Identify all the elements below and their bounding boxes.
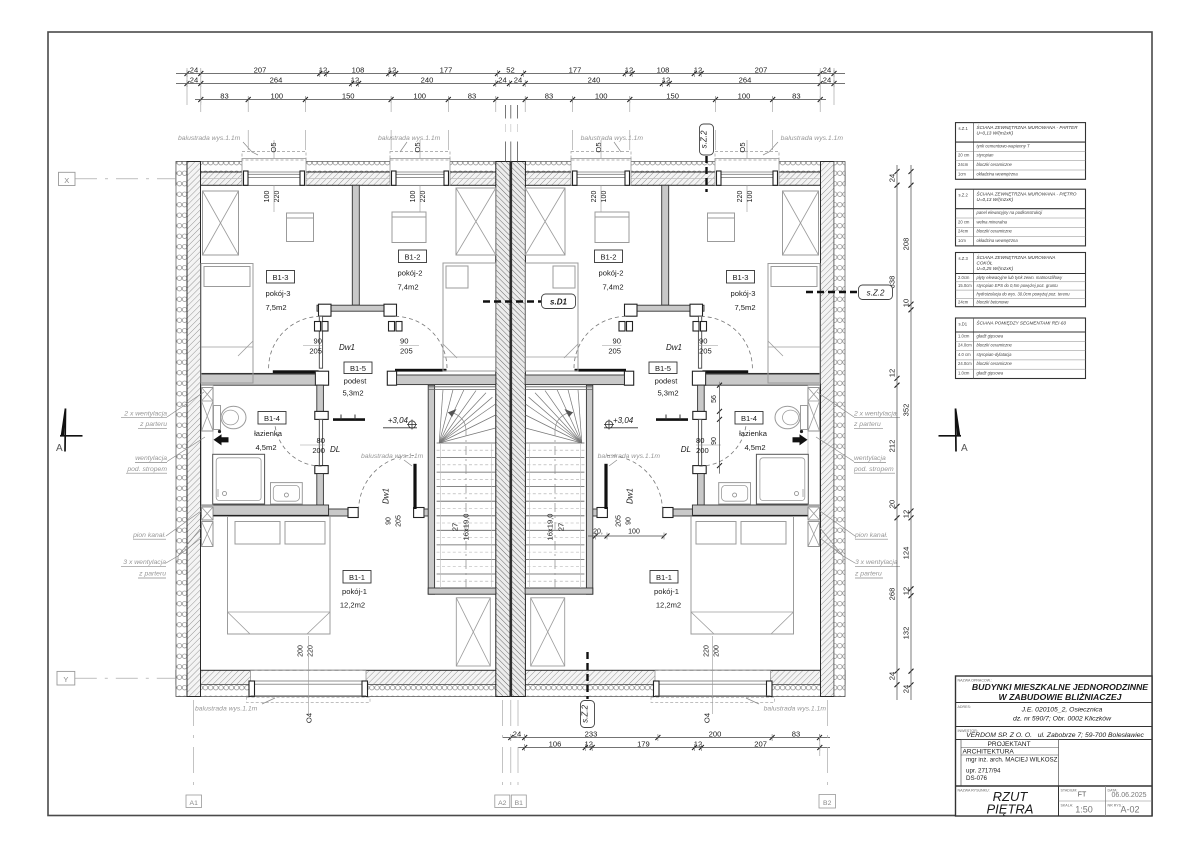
svg-text:bloczki ceramiczne: bloczki ceramiczne: [977, 343, 1013, 348]
svg-text:12: 12: [888, 369, 897, 377]
svg-text:10: 10: [902, 299, 911, 307]
svg-text:X: X: [64, 176, 69, 185]
svg-text:12,2m2: 12,2m2: [340, 601, 365, 610]
svg-text:212: 212: [888, 440, 897, 453]
svg-text:264: 264: [270, 75, 283, 84]
svg-text:s.Z.1: s.Z.1: [959, 126, 969, 131]
svg-text:12: 12: [902, 510, 911, 518]
svg-text:220: 220: [420, 191, 427, 203]
svg-text:wentylacja: wentylacja: [135, 455, 167, 462]
svg-text:B1-2: B1-2: [600, 253, 616, 262]
svg-text:U=0,25 W/(m2xK): U=0,25 W/(m2xK): [977, 266, 1014, 271]
svg-text:Y: Y: [63, 675, 68, 684]
svg-text:24: 24: [513, 729, 521, 738]
svg-text:ŚCIANA POMIĘDZY SEGMENTAMI REI: ŚCIANA POMIĘDZY SEGMENTAMI REI-60: [977, 320, 1067, 326]
svg-text:200: 200: [714, 645, 721, 657]
svg-text:B1-1: B1-1: [349, 573, 365, 582]
svg-text:z parteru: z parteru: [853, 421, 881, 428]
svg-text:bloczki ceramiczne: bloczki ceramiczne: [977, 361, 1013, 366]
svg-text:24: 24: [190, 75, 198, 84]
svg-text:tynk cementowo-wapienny T: tynk cementowo-wapienny T: [977, 143, 1031, 148]
svg-text:1cm: 1cm: [958, 171, 966, 176]
svg-text:24cm: 24cm: [958, 162, 969, 167]
svg-text:B1-5: B1-5: [655, 364, 671, 373]
svg-text:100: 100: [738, 91, 751, 100]
svg-text:wentylacja: wentylacja: [854, 455, 886, 462]
svg-text:205: 205: [309, 347, 322, 356]
svg-text:90: 90: [626, 517, 633, 525]
svg-text:12: 12: [694, 739, 702, 748]
svg-text:pokój-3: pokój-3: [266, 289, 291, 298]
svg-text:150: 150: [342, 91, 355, 100]
svg-text:ŚCIANA ZEWNĘTRZNA MUROWANA - P: ŚCIANA ZEWNĘTRZNA MUROWANA - PARTER: [977, 124, 1079, 130]
svg-text:24: 24: [498, 75, 506, 84]
svg-text:pion kanał.: pion kanał.: [854, 532, 888, 539]
svg-text:s.Z.2: s.Z.2: [700, 130, 709, 148]
svg-text:205: 205: [400, 347, 413, 356]
svg-text:2 x wentylacja: 2 x wentylacja: [853, 410, 897, 417]
svg-text:150: 150: [666, 91, 679, 100]
svg-text:24.0cm: 24.0cm: [958, 343, 972, 348]
svg-text:16x19,0: 16x19,0: [462, 513, 471, 540]
svg-text:płyty elewacyjne lub tynk zewn: płyty elewacyjne lub tynk zewn. matnoszl…: [976, 275, 1064, 280]
svg-text:3 x wentylacja: 3 x wentylacja: [855, 559, 898, 566]
svg-text:s.D1: s.D1: [550, 298, 567, 307]
svg-text:4,5m2: 4,5m2: [744, 443, 765, 452]
svg-text:90: 90: [699, 337, 707, 346]
svg-text:SKALA:: SKALA:: [1061, 804, 1074, 808]
svg-text:179: 179: [637, 739, 650, 748]
svg-text:bloczki betonowe: bloczki betonowe: [977, 300, 1010, 305]
svg-text:pokój-2: pokój-2: [599, 269, 624, 278]
svg-text:balustrada wys.1.1m: balustrada wys.1.1m: [764, 706, 827, 713]
svg-text:U=0,13 W/(m2xK): U=0,13 W/(m2xK): [977, 197, 1014, 202]
svg-text:24: 24: [888, 174, 897, 182]
svg-text:2.0cm: 2.0cm: [958, 275, 970, 280]
svg-text:A-02: A-02: [1120, 805, 1139, 815]
svg-text:83: 83: [792, 729, 800, 738]
svg-text:352: 352: [902, 404, 911, 417]
svg-text:U=0,13 W/(m2xK): U=0,13 W/(m2xK): [977, 131, 1014, 136]
svg-text:12: 12: [388, 65, 396, 74]
svg-text:balustrada wys.1.1m: balustrada wys.1.1m: [781, 135, 844, 142]
svg-text:pokój-1: pokój-1: [342, 587, 367, 596]
svg-text:132: 132: [902, 627, 911, 640]
svg-text:108: 108: [657, 65, 670, 74]
svg-text:A1: A1: [190, 800, 199, 807]
svg-text:177: 177: [569, 65, 582, 74]
svg-text:łazienka: łazienka: [254, 429, 283, 438]
svg-text:108: 108: [352, 65, 365, 74]
svg-text:PROJEKTANT: PROJEKTANT: [987, 741, 1030, 748]
svg-text:83: 83: [220, 91, 228, 100]
svg-text:12: 12: [584, 739, 592, 748]
svg-text:90: 90: [613, 337, 621, 346]
svg-text:4,5m2: 4,5m2: [255, 443, 276, 452]
svg-text:207: 207: [254, 65, 267, 74]
svg-text:1:50: 1:50: [1075, 805, 1093, 815]
svg-text:pokój-2: pokój-2: [398, 269, 423, 278]
svg-text:06.06.2025: 06.06.2025: [1111, 792, 1146, 799]
svg-text:podest: podest: [344, 377, 368, 386]
svg-text:W ZABUDOWIE BLIŻNIACZEJ: W ZABUDOWIE BLIŻNIACZEJ: [998, 692, 1121, 702]
svg-text:łazienka: łazienka: [739, 429, 768, 438]
svg-text:100: 100: [264, 191, 271, 203]
svg-text:100: 100: [628, 529, 640, 536]
svg-text:pokój-1: pokój-1: [654, 587, 679, 596]
svg-text:Dw1: Dw1: [382, 488, 391, 504]
svg-text:O4: O4: [703, 713, 712, 723]
svg-text:24cm: 24cm: [958, 300, 969, 305]
svg-text:B1-3: B1-3: [732, 273, 748, 282]
svg-text:Dw1: Dw1: [626, 488, 635, 504]
svg-text:B1: B1: [515, 800, 524, 807]
svg-text:205: 205: [608, 347, 621, 356]
svg-text:panel elewacyjny na podkonstru: panel elewacyjny na podkonstrukcji: [976, 210, 1044, 215]
svg-text:220: 220: [591, 191, 598, 203]
svg-text:20 cm: 20 cm: [958, 219, 970, 224]
svg-text:balustrada wys.1.1m: balustrada wys.1.1m: [598, 453, 661, 460]
svg-text:20: 20: [888, 500, 897, 508]
svg-text:24.0cm: 24.0cm: [958, 361, 972, 366]
svg-text:dz. nr 590/7; Obr. 0002 Kliczk: dz. nr 590/7; Obr. 0002 Kliczków: [1013, 716, 1112, 723]
svg-text:208: 208: [902, 238, 911, 251]
svg-text:100: 100: [410, 191, 417, 203]
svg-text:205: 205: [396, 515, 403, 527]
svg-text:205: 205: [699, 347, 712, 356]
svg-text:balustrada wys.1.1m: balustrada wys.1.1m: [178, 135, 241, 142]
svg-text:A: A: [961, 443, 968, 454]
svg-text:z parteru: z parteru: [139, 421, 167, 428]
svg-text:O5: O5: [413, 142, 422, 152]
svg-text:STADIUM:: STADIUM:: [1061, 789, 1078, 793]
svg-text:upr. 2717/94: upr. 2717/94: [966, 768, 1001, 775]
svg-text:VERDOM SP. Z O. O. ul. Zabob: VERDOM SP. Z O. O. ul. Zabobrze 7; 59-70…: [966, 732, 1144, 739]
svg-text:styropian: styropian: [977, 153, 995, 158]
svg-text:100: 100: [413, 91, 426, 100]
svg-text:100: 100: [595, 91, 608, 100]
svg-text:240: 240: [421, 75, 434, 84]
svg-text:200: 200: [709, 729, 722, 738]
svg-text:ARCHITEKTURA: ARCHITEKTURA: [963, 749, 1015, 756]
svg-text:12: 12: [902, 587, 911, 595]
svg-text:200: 200: [312, 446, 325, 455]
svg-text:mgr inż. arch. MACIEJ WILKOSZ: mgr inż. arch. MACIEJ WILKOSZ: [966, 757, 1058, 764]
svg-text:+3,04: +3,04: [388, 416, 409, 425]
svg-text:2 x wentylacja: 2 x wentylacja: [123, 410, 167, 417]
svg-text:B1-4: B1-4: [741, 414, 757, 423]
svg-text:16x19,0: 16x19,0: [546, 513, 555, 540]
svg-text:z parteru: z parteru: [138, 571, 166, 578]
svg-text:220: 220: [704, 645, 711, 657]
svg-text:balustrada wys.1.1m: balustrada wys.1.1m: [378, 135, 441, 142]
svg-text:FT: FT: [1078, 792, 1087, 799]
svg-text:7,4m2: 7,4m2: [602, 283, 623, 292]
svg-text:hydroizolacja do wys. 30.0cm p: hydroizolacja do wys. 30.0cm powyżej poz…: [977, 291, 1071, 296]
svg-text:5,3m2: 5,3m2: [657, 389, 678, 398]
svg-text:balustrada wys.1.1m: balustrada wys.1.1m: [581, 135, 644, 142]
svg-text:pokój-3: pokój-3: [731, 289, 756, 298]
svg-text:z parteru: z parteru: [854, 571, 882, 578]
svg-text:27: 27: [557, 523, 566, 531]
svg-text:83: 83: [545, 91, 553, 100]
svg-text:A: A: [56, 443, 63, 454]
svg-text:pod. stropem: pod. stropem: [853, 466, 894, 473]
svg-text:12: 12: [625, 65, 633, 74]
svg-text:wełna mineralna: wełna mineralna: [977, 219, 1008, 224]
svg-text:ADRES:: ADRES:: [958, 705, 971, 709]
svg-text:B1-4: B1-4: [264, 414, 280, 423]
svg-text:100: 100: [270, 91, 283, 100]
svg-text:12: 12: [662, 75, 670, 84]
svg-text:24: 24: [190, 65, 198, 74]
svg-text:O4: O4: [305, 713, 314, 723]
svg-text:240: 240: [588, 75, 601, 84]
svg-text:90: 90: [400, 337, 408, 346]
svg-text:gładź gipsowa: gładź gipsowa: [977, 333, 1004, 338]
svg-text:podest: podest: [655, 377, 679, 386]
svg-text:Dw1: Dw1: [339, 343, 355, 352]
svg-text:200: 200: [696, 446, 709, 455]
svg-text:24: 24: [514, 75, 522, 84]
svg-text:J.E. 020105_2, Osiecznica: J.E. 020105_2, Osiecznica: [1021, 707, 1103, 714]
svg-text:ŚCIANA ZEWNĘTRZNA MUROWANA - P: ŚCIANA ZEWNĘTRZNA MUROWANA - PIĘTRO: [977, 191, 1077, 197]
svg-text:styropian-dylatacja: styropian-dylatacja: [977, 352, 1013, 357]
svg-text:12: 12: [319, 65, 327, 74]
svg-text:COKÓŁ: COKÓŁ: [977, 259, 994, 265]
svg-text:Dw1: Dw1: [666, 343, 682, 352]
svg-text:200: 200: [298, 645, 305, 657]
svg-text:90: 90: [386, 517, 393, 525]
svg-text:A2: A2: [498, 800, 507, 807]
svg-text:DS-076: DS-076: [966, 775, 988, 782]
svg-text:DL: DL: [330, 445, 340, 454]
svg-text:7,5m2: 7,5m2: [265, 303, 286, 312]
svg-text:DL: DL: [681, 445, 691, 454]
svg-text:83: 83: [468, 91, 476, 100]
svg-text:1.0cm: 1.0cm: [958, 333, 970, 338]
svg-text:s.D1: s.D1: [959, 322, 968, 327]
svg-text:4.0 cm: 4.0 cm: [958, 352, 971, 357]
svg-text:24: 24: [888, 672, 897, 680]
svg-text:gładź gipsowa: gładź gipsowa: [977, 371, 1004, 376]
svg-text:177: 177: [440, 65, 453, 74]
svg-text:balustrada wys.1.1m: balustrada wys.1.1m: [195, 706, 258, 713]
svg-text:220: 220: [737, 191, 744, 203]
svg-text:O5: O5: [594, 142, 603, 152]
svg-text:B1-5: B1-5: [350, 364, 366, 373]
svg-text:ŚCIANA ZEWNĘTRZNA MUROWANA: ŚCIANA ZEWNĘTRZNA MUROWANA: [977, 254, 1056, 260]
svg-text:12,2m2: 12,2m2: [656, 601, 681, 610]
svg-text:BUDYNKI MIESZKALNE JEDNORODZIN: BUDYNKI MIESZKALNE JEDNORODZINNE: [972, 682, 1149, 692]
svg-text:24: 24: [823, 65, 831, 74]
svg-text:90: 90: [314, 337, 322, 346]
svg-text:O5: O5: [738, 142, 747, 152]
svg-text:205: 205: [616, 515, 623, 527]
svg-text:B1-1: B1-1: [656, 573, 672, 582]
svg-text:B2: B2: [823, 800, 832, 807]
svg-text:268: 268: [888, 588, 897, 601]
svg-text:20 cm: 20 cm: [958, 153, 970, 158]
svg-text:52: 52: [506, 65, 514, 74]
svg-text:s.Z.2: s.Z.2: [959, 193, 969, 198]
svg-text:7,5m2: 7,5m2: [734, 303, 755, 312]
svg-text:balustrada wys.1.1m: balustrada wys.1.1m: [361, 453, 424, 460]
svg-text:233: 233: [585, 729, 598, 738]
svg-text:264: 264: [739, 75, 752, 84]
svg-text:220: 220: [274, 191, 281, 203]
svg-text:s.Z.3: s.Z.3: [959, 256, 969, 261]
svg-text:24: 24: [823, 75, 831, 84]
svg-text:20,: 20,: [593, 529, 603, 536]
svg-text:12: 12: [694, 65, 702, 74]
svg-text:okładzina wewnętrzna: okładzina wewnętrzna: [977, 238, 1019, 243]
svg-text:15.0cm: 15.0cm: [958, 283, 972, 288]
svg-text:80: 80: [317, 436, 325, 445]
svg-text:okładzina wewnętrzna: okładzina wewnętrzna: [977, 171, 1019, 176]
svg-text:90: 90: [711, 437, 718, 445]
svg-text:3 x wentylacja: 3 x wentylacja: [123, 559, 166, 566]
svg-text:83: 83: [792, 91, 800, 100]
svg-text:24: 24: [902, 685, 911, 693]
svg-text:styropian EPS do 0,5m powyżej: styropian EPS do 0,5m powyżej poz. grunt…: [977, 283, 1059, 288]
svg-text:100: 100: [747, 191, 754, 203]
svg-text:7,4m2: 7,4m2: [397, 283, 418, 292]
svg-text:+3,04: +3,04: [613, 416, 634, 425]
svg-text:24cm: 24cm: [958, 229, 969, 234]
svg-text:56: 56: [711, 395, 718, 403]
svg-text:pod. stropem: pod. stropem: [126, 466, 167, 473]
svg-text:NAZWA RYSUNKU:: NAZWA RYSUNKU:: [958, 789, 990, 793]
svg-text:5,3m2: 5,3m2: [342, 389, 363, 398]
svg-text:pion kanał.: pion kanał.: [132, 532, 166, 539]
svg-text:B1-2: B1-2: [404, 253, 420, 262]
svg-text:1cm: 1cm: [958, 238, 966, 243]
svg-text:106: 106: [549, 739, 562, 748]
svg-text:bloczki ceramiczne: bloczki ceramiczne: [977, 162, 1013, 167]
svg-text:PIĘTRA: PIĘTRA: [987, 802, 1034, 817]
svg-text:207: 207: [755, 65, 768, 74]
svg-text:12: 12: [351, 75, 359, 84]
svg-text:s.Z.2: s.Z.2: [867, 289, 885, 298]
svg-text:100: 100: [601, 191, 608, 203]
svg-text:bloczki ceramiczne: bloczki ceramiczne: [977, 229, 1013, 234]
svg-text:207: 207: [754, 739, 767, 748]
svg-text:27: 27: [451, 523, 460, 531]
svg-text:s.Z.2: s.Z.2: [581, 705, 590, 723]
svg-text:124: 124: [902, 547, 911, 560]
svg-text:1.0cm: 1.0cm: [958, 371, 970, 376]
svg-text:O5: O5: [269, 142, 278, 152]
svg-text:80: 80: [696, 436, 704, 445]
svg-text:B1-3: B1-3: [272, 273, 288, 282]
